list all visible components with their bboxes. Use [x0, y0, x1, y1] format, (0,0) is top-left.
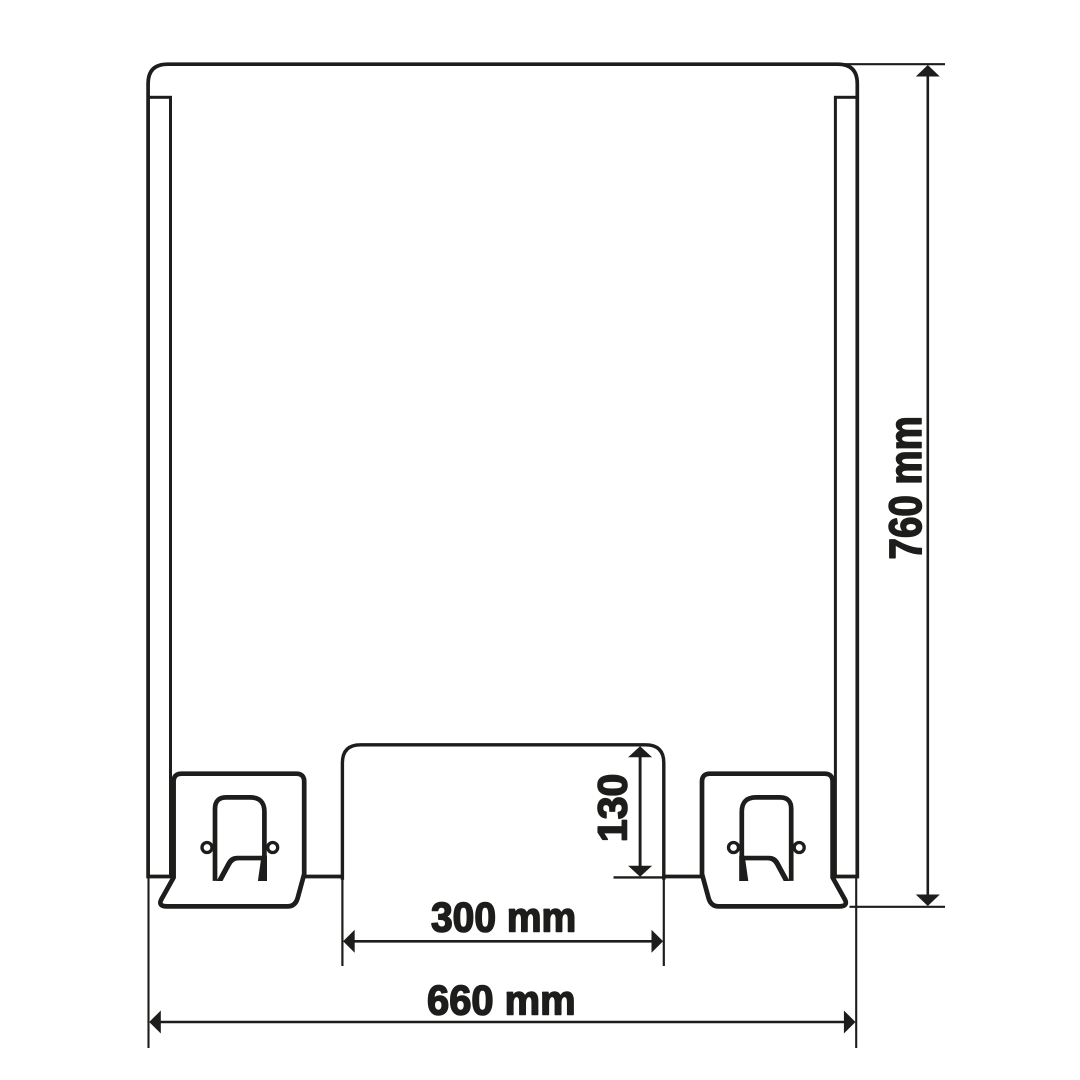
svg-text:130: 130 — [590, 774, 636, 842]
svg-text:660 mm: 660 mm — [427, 976, 576, 1023]
svg-text:300 mm: 300 mm — [431, 894, 576, 940]
svg-text:760 mm: 760 mm — [880, 416, 931, 559]
